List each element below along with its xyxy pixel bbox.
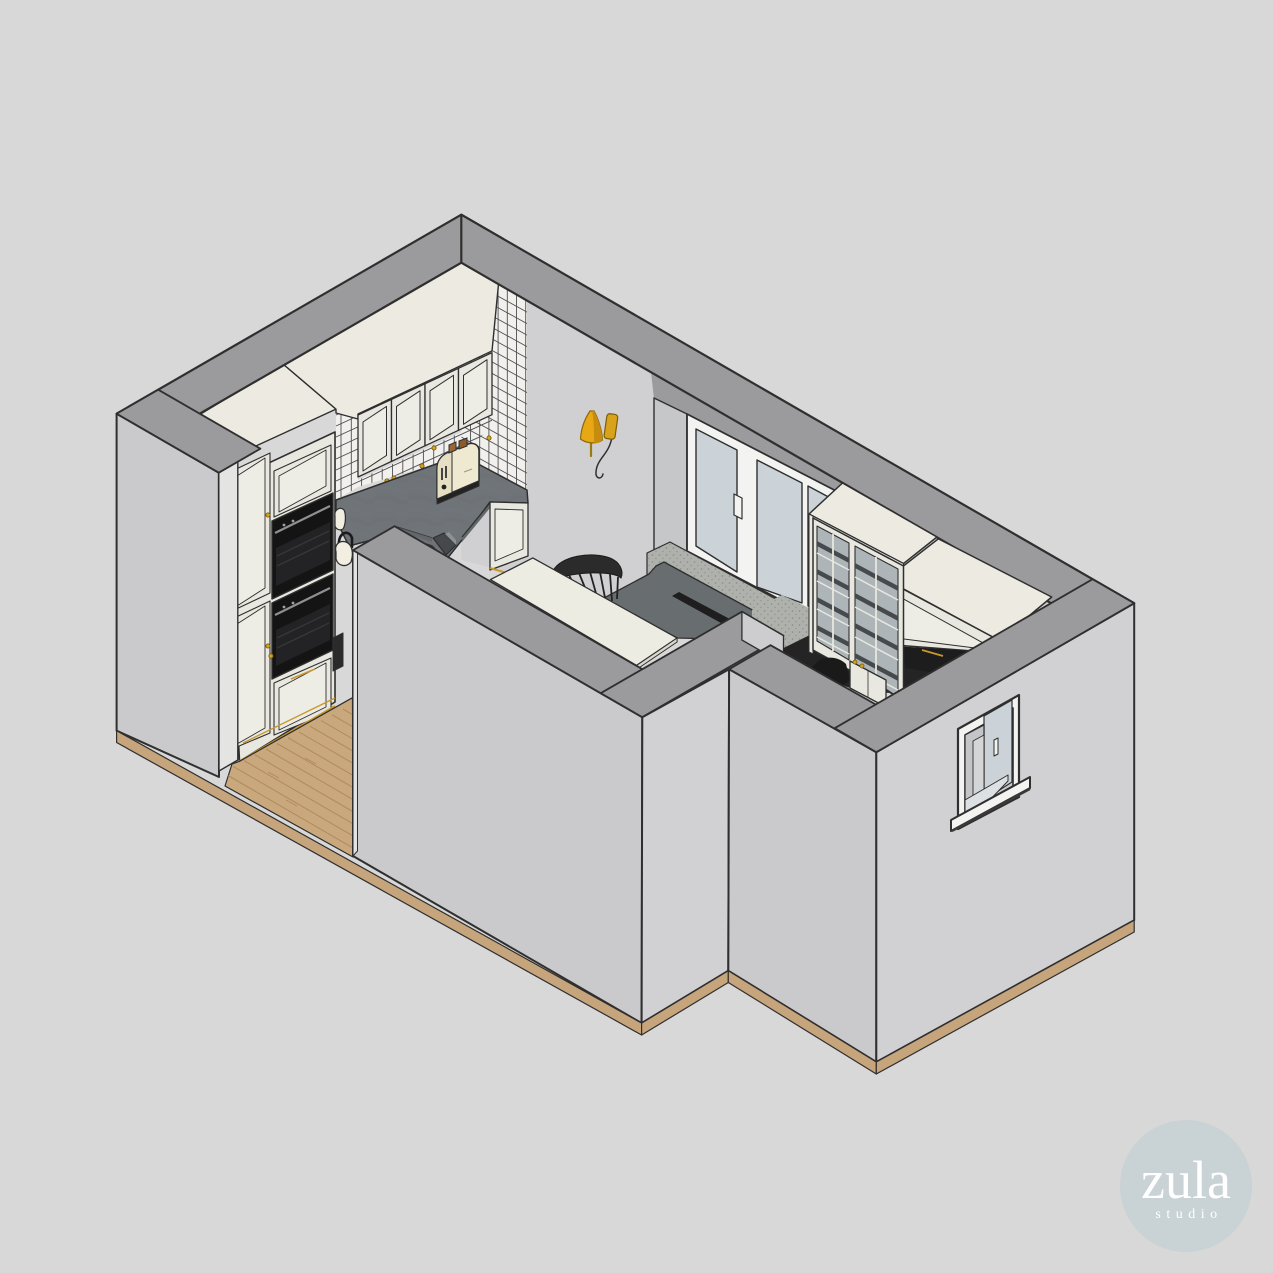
- svg-text:studio: studio: [1155, 1207, 1222, 1222]
- svg-text:zula: zula: [1141, 1150, 1231, 1210]
